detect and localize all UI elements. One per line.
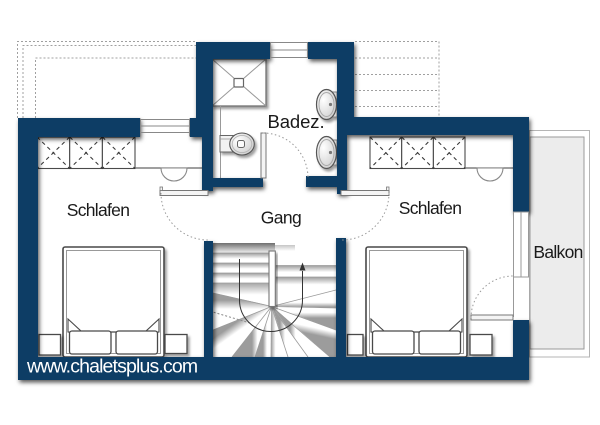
svg-text:Schlafen: Schlafen (67, 200, 130, 220)
svg-text:Badez.: Badez. (268, 111, 325, 132)
svg-text:Schlafen: Schlafen (399, 198, 462, 218)
svg-text:www.chaletsplus.com: www.chaletsplus.com (26, 356, 197, 378)
svg-text:Balkon: Balkon (533, 242, 582, 262)
svg-text:Gang: Gang (261, 208, 301, 228)
